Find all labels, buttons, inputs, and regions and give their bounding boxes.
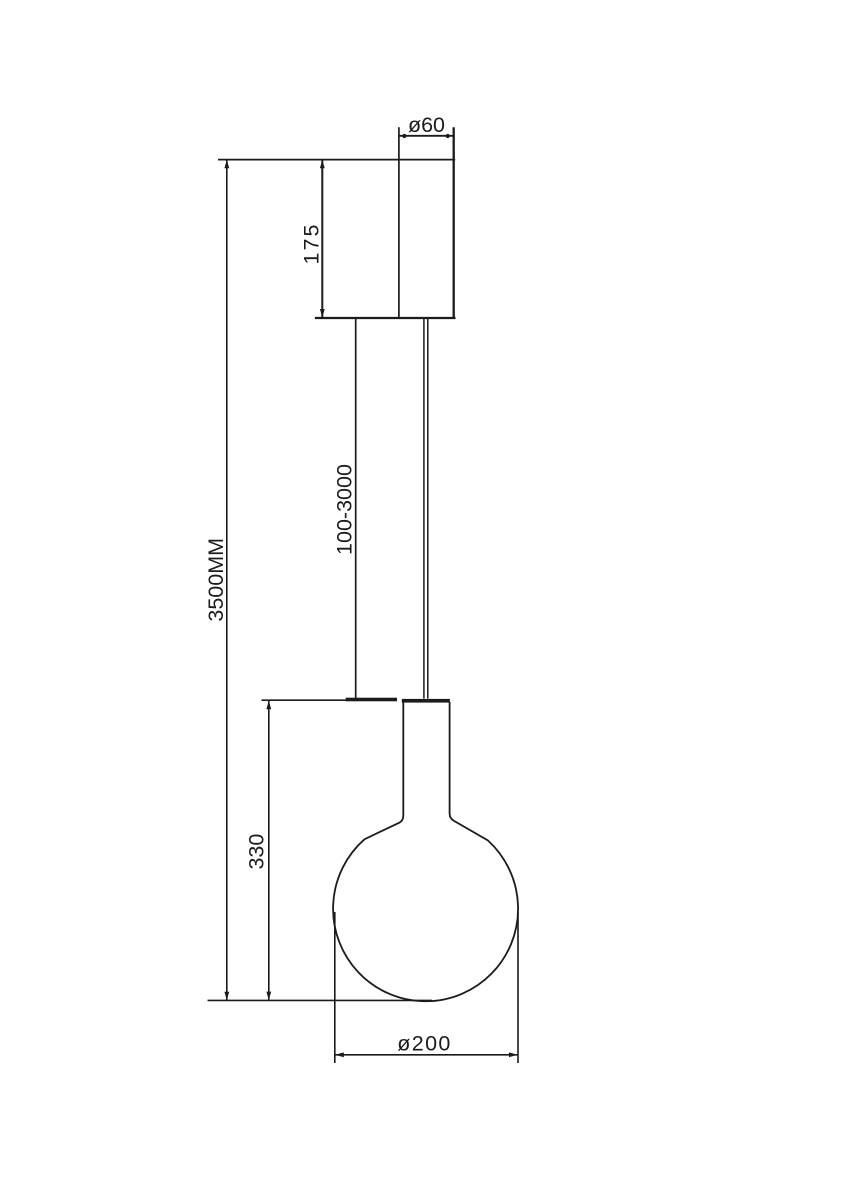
svg-text:3500MM: 3500MM: [204, 538, 228, 622]
svg-text:330: 330: [245, 834, 269, 870]
svg-text:ø200: ø200: [397, 1031, 452, 1055]
svg-text:175: 175: [299, 223, 323, 265]
svg-text:100-3000: 100-3000: [333, 464, 357, 555]
svg-text:ø60: ø60: [408, 113, 445, 137]
